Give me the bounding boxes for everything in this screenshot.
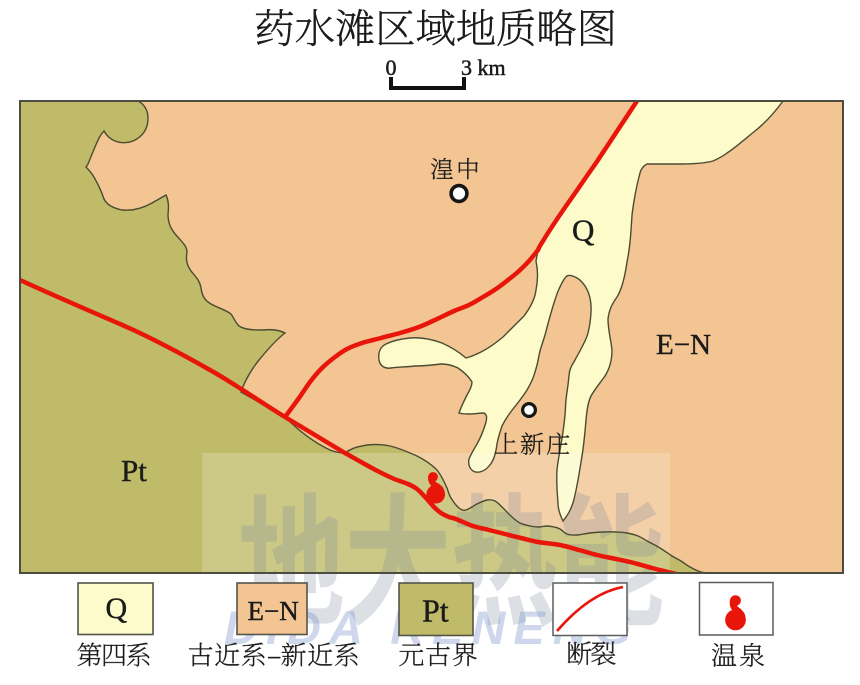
svg-text:Pt: Pt (121, 453, 147, 488)
svg-text:Q: Q (572, 213, 594, 248)
svg-text:Pt: Pt (422, 593, 449, 629)
svg-text:E−N: E−N (248, 596, 299, 626)
svg-text:3 km: 3 km (461, 55, 506, 80)
svg-text:0: 0 (386, 55, 397, 80)
svg-text:Q: Q (106, 592, 128, 625)
svg-text:E−N: E−N (656, 329, 711, 361)
